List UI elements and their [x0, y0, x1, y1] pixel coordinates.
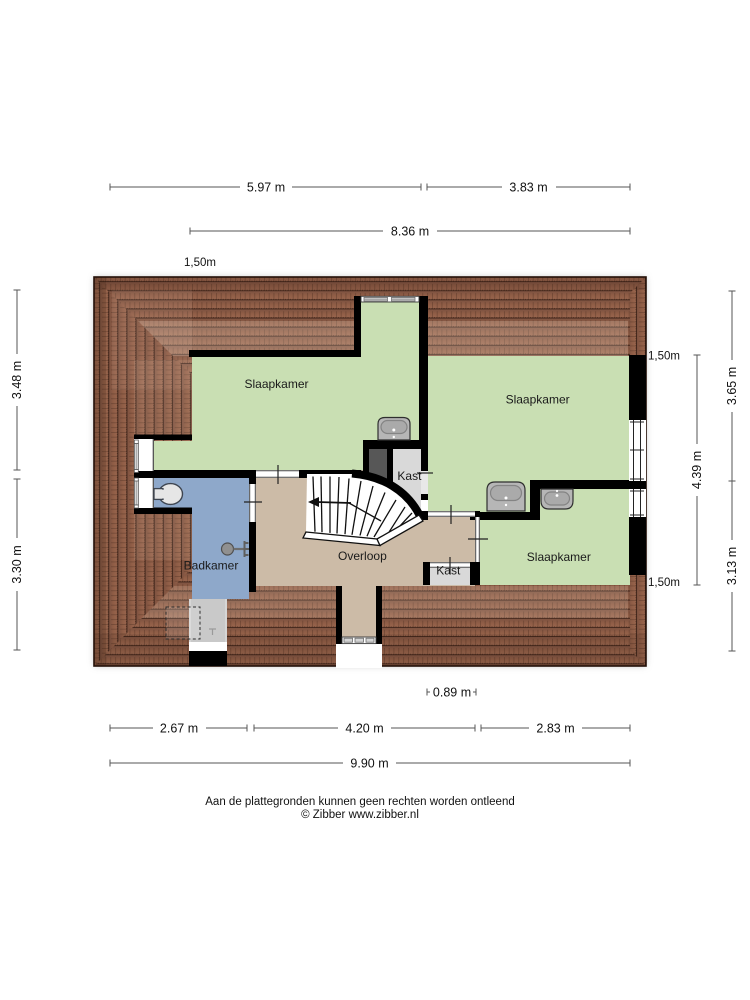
svg-text:1,50m: 1,50m: [648, 577, 680, 589]
svg-text:4.20 m: 4.20 m: [345, 722, 383, 736]
svg-text:Slaapkamer: Slaapkamer: [527, 550, 591, 564]
svg-text:3.48 m: 3.48 m: [10, 361, 24, 399]
svg-text:Slaapkamer: Slaapkamer: [244, 377, 308, 391]
svg-text:Aan de plattegronden kunnen ge: Aan de plattegronden kunnen geen rechten…: [205, 796, 514, 808]
svg-text:Badkamer: Badkamer: [184, 559, 239, 573]
svg-text:3.65 m: 3.65 m: [725, 367, 739, 405]
svg-text:4.39 m: 4.39 m: [690, 451, 704, 489]
svg-text:© Zibber www.zibber.nl: © Zibber www.zibber.nl: [301, 809, 419, 821]
svg-text:3.30 m: 3.30 m: [10, 545, 24, 583]
svg-text:3.83 m: 3.83 m: [509, 181, 547, 195]
svg-text:3.13 m: 3.13 m: [725, 547, 739, 585]
svg-text:2.83 m: 2.83 m: [536, 722, 574, 736]
svg-text:0.89 m: 0.89 m: [433, 686, 471, 700]
svg-text:9.90 m: 9.90 m: [350, 757, 388, 771]
svg-text:Overloop: Overloop: [338, 549, 387, 563]
svg-text:Slaapkamer: Slaapkamer: [506, 393, 570, 407]
svg-text:Kast: Kast: [436, 564, 461, 578]
svg-text:1,50m: 1,50m: [184, 257, 216, 269]
svg-text:2.67 m: 2.67 m: [160, 722, 198, 736]
svg-text:5.97 m: 5.97 m: [247, 181, 285, 195]
svg-text:1,50m: 1,50m: [648, 351, 680, 363]
svg-text:8.36 m: 8.36 m: [391, 225, 429, 239]
svg-text:Kast: Kast: [397, 469, 422, 483]
